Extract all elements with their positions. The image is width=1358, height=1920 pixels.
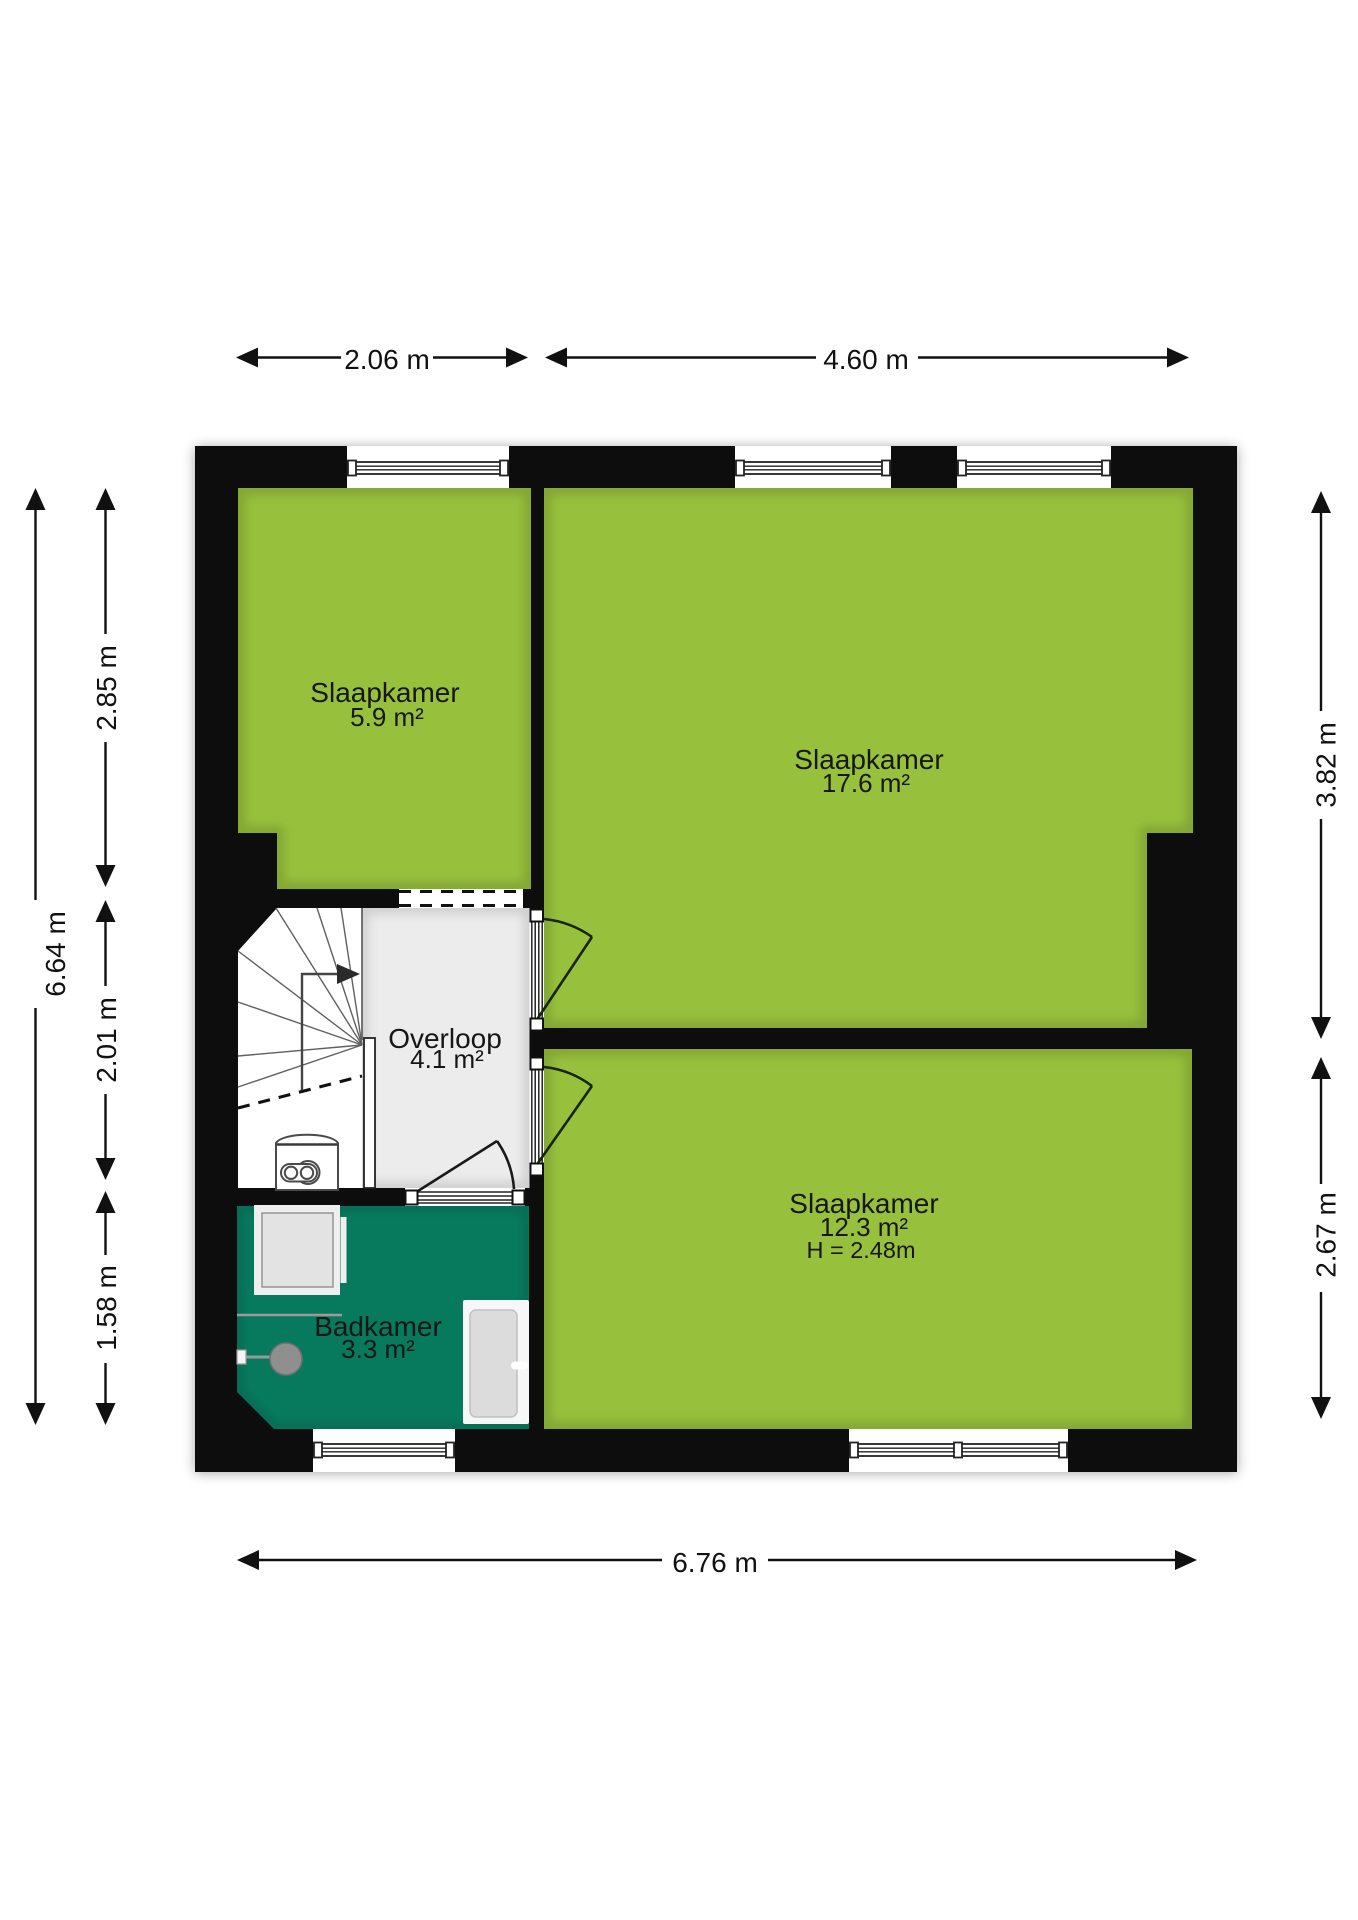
svg-text:4.60 m: 4.60 m <box>823 344 909 375</box>
svg-text:3.82 m: 3.82 m <box>1311 722 1342 808</box>
svg-text:4.1 m²: 4.1 m² <box>410 1044 484 1074</box>
svg-text:3.3 m²: 3.3 m² <box>341 1334 415 1364</box>
svg-text:1.58 m: 1.58 m <box>91 1265 122 1351</box>
svg-text:5.9 m²: 5.9 m² <box>350 702 424 732</box>
svg-text:2.85 m: 2.85 m <box>91 645 122 731</box>
svg-text:H = 2.48m: H = 2.48m <box>806 1237 915 1263</box>
svg-text:6.64 m: 6.64 m <box>40 911 71 997</box>
svg-text:2.06 m: 2.06 m <box>344 344 430 375</box>
svg-text:2.01 m: 2.01 m <box>91 997 122 1083</box>
svg-text:6.76 m: 6.76 m <box>672 1547 758 1578</box>
svg-text:17.6 m²: 17.6 m² <box>822 768 910 798</box>
svg-text:2.67 m: 2.67 m <box>1311 1192 1342 1278</box>
